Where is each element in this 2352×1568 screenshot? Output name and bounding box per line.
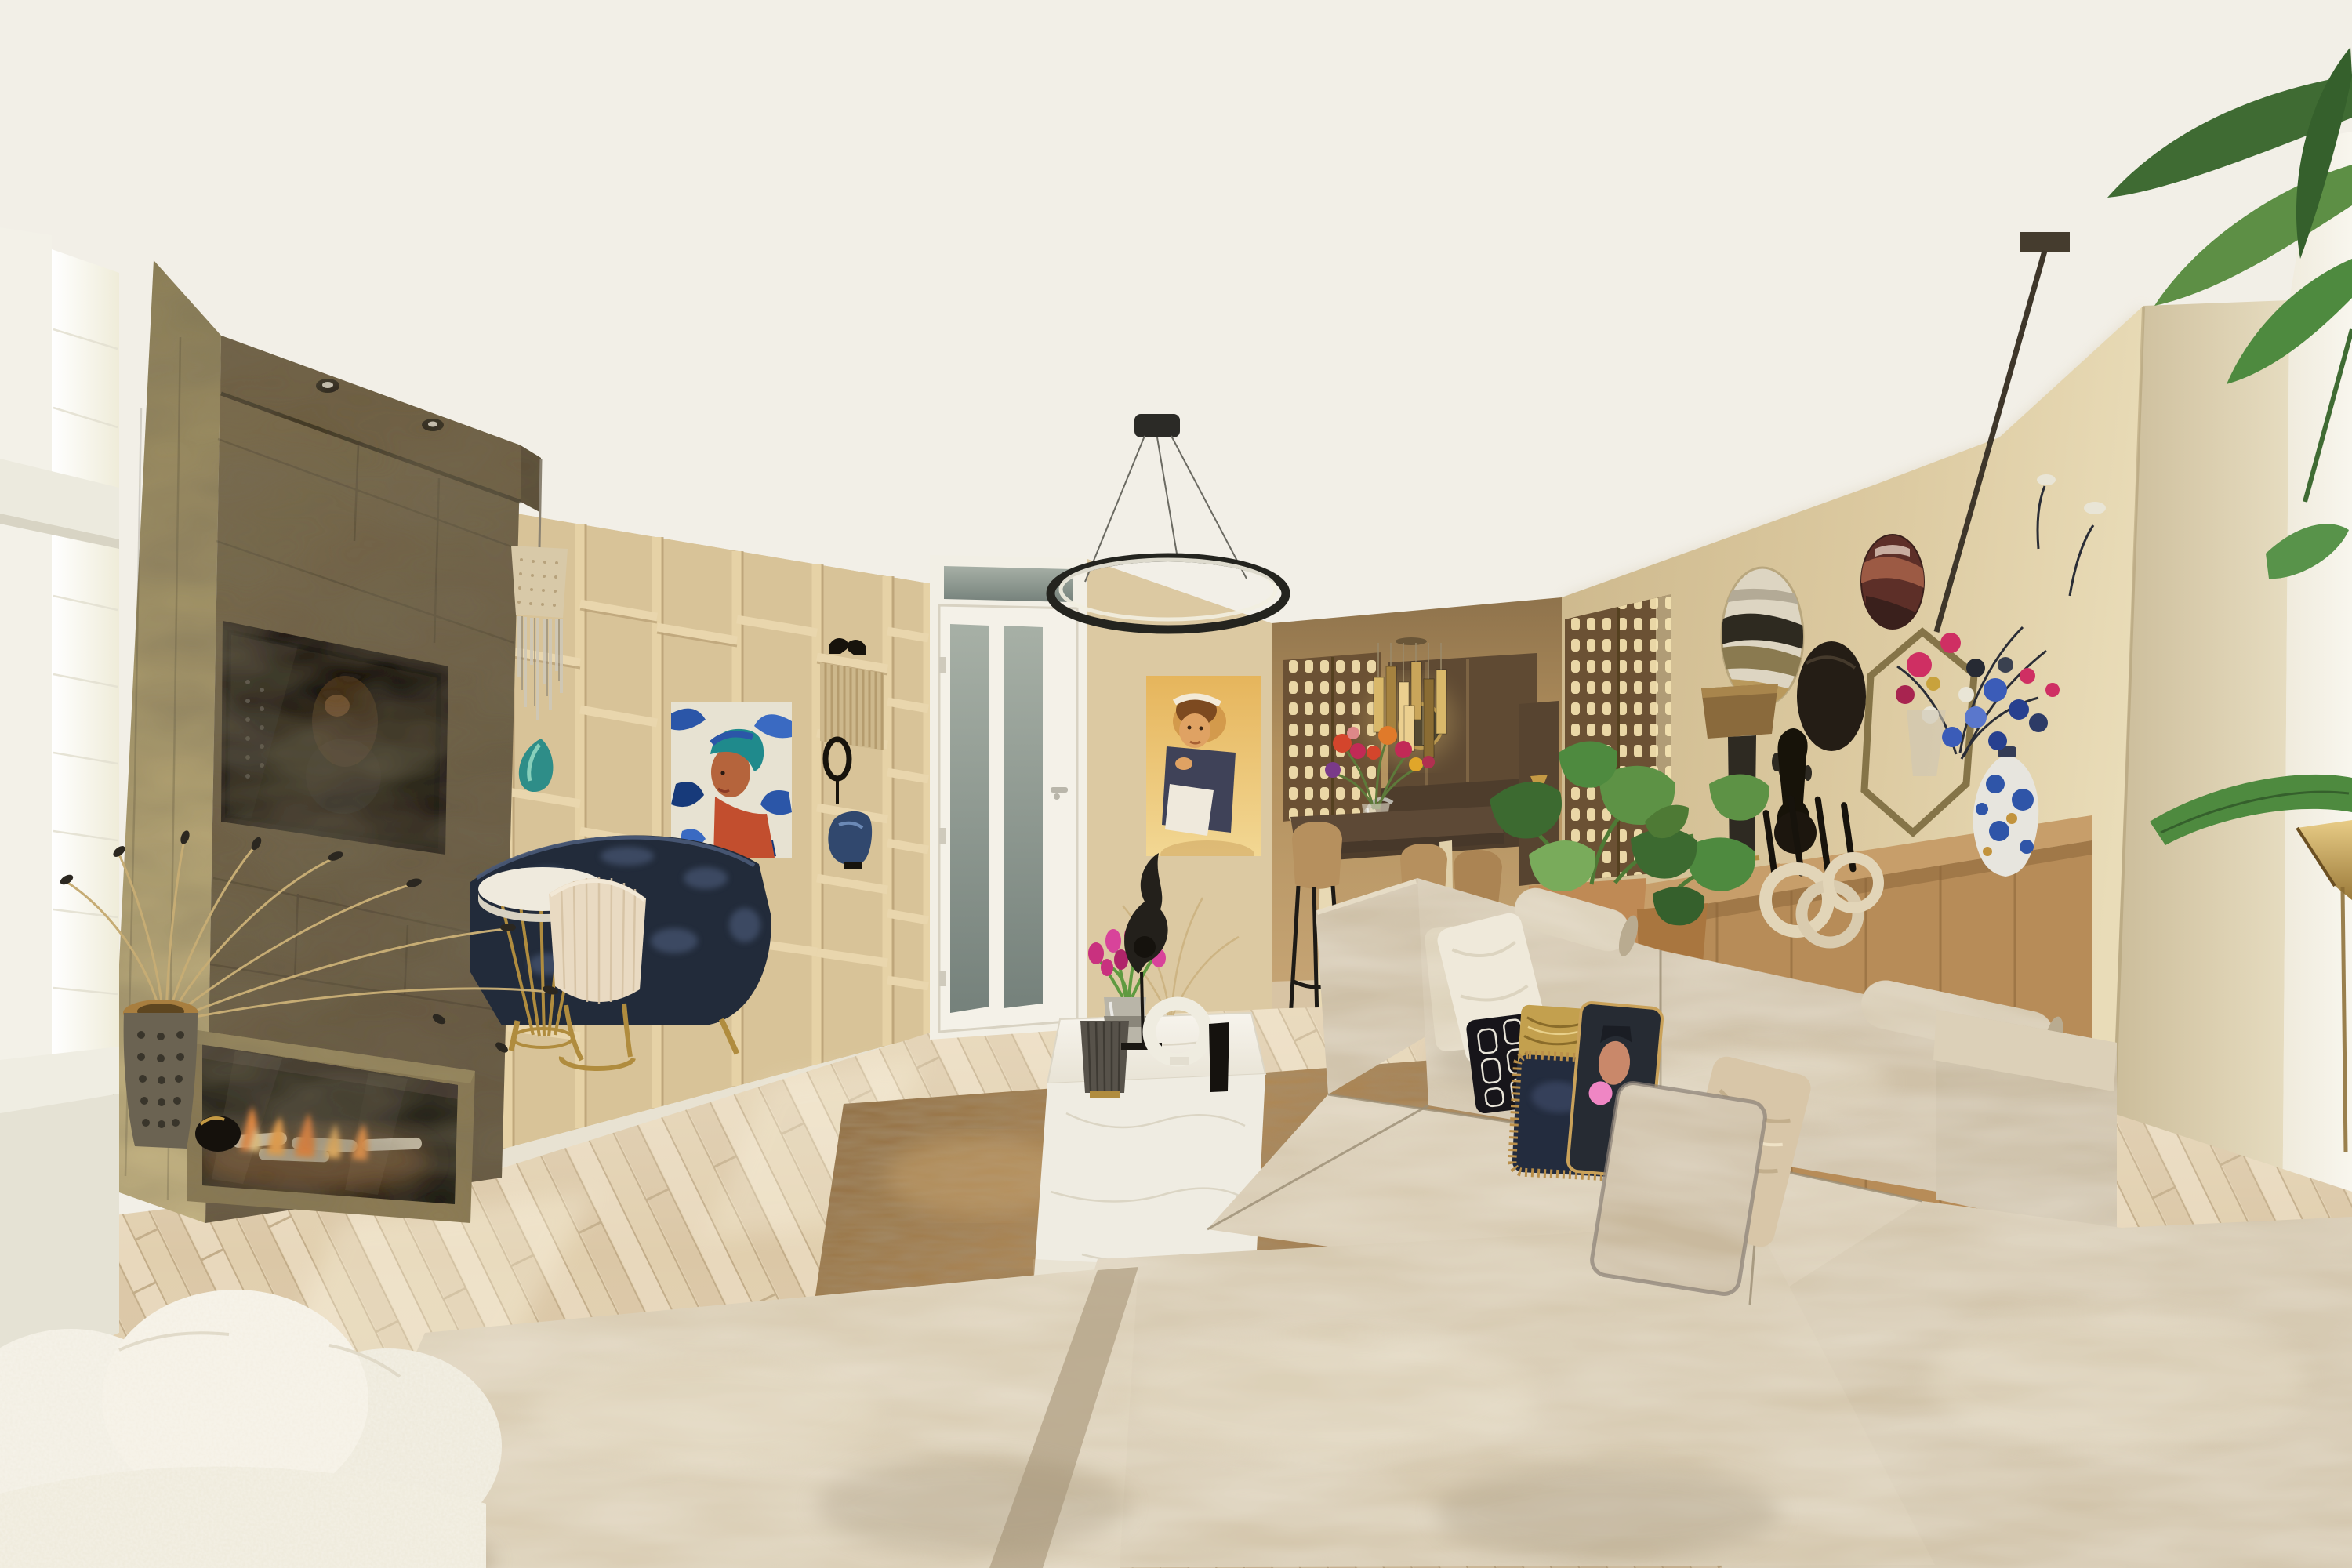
black-box <box>1209 1022 1229 1092</box>
pillow-crushed-taupe <box>1590 1081 1767 1297</box>
hall-door <box>930 555 1087 1040</box>
door-glass-left <box>950 624 989 1013</box>
window-blind <box>52 249 119 1060</box>
child-painting <box>1146 676 1261 869</box>
slat-panel <box>820 662 884 750</box>
black-disc-tray <box>1797 641 1866 751</box>
ribbed-vase <box>1080 1021 1129 1098</box>
living-room-photo <box>0 0 2352 1568</box>
black-egg-sculpture <box>195 1116 241 1152</box>
ceiling-rod-plate <box>2020 232 2070 252</box>
door-handle <box>1051 787 1068 793</box>
door-glass-right <box>1004 626 1043 1008</box>
window <box>0 227 119 1380</box>
woman-painting <box>671 702 792 858</box>
